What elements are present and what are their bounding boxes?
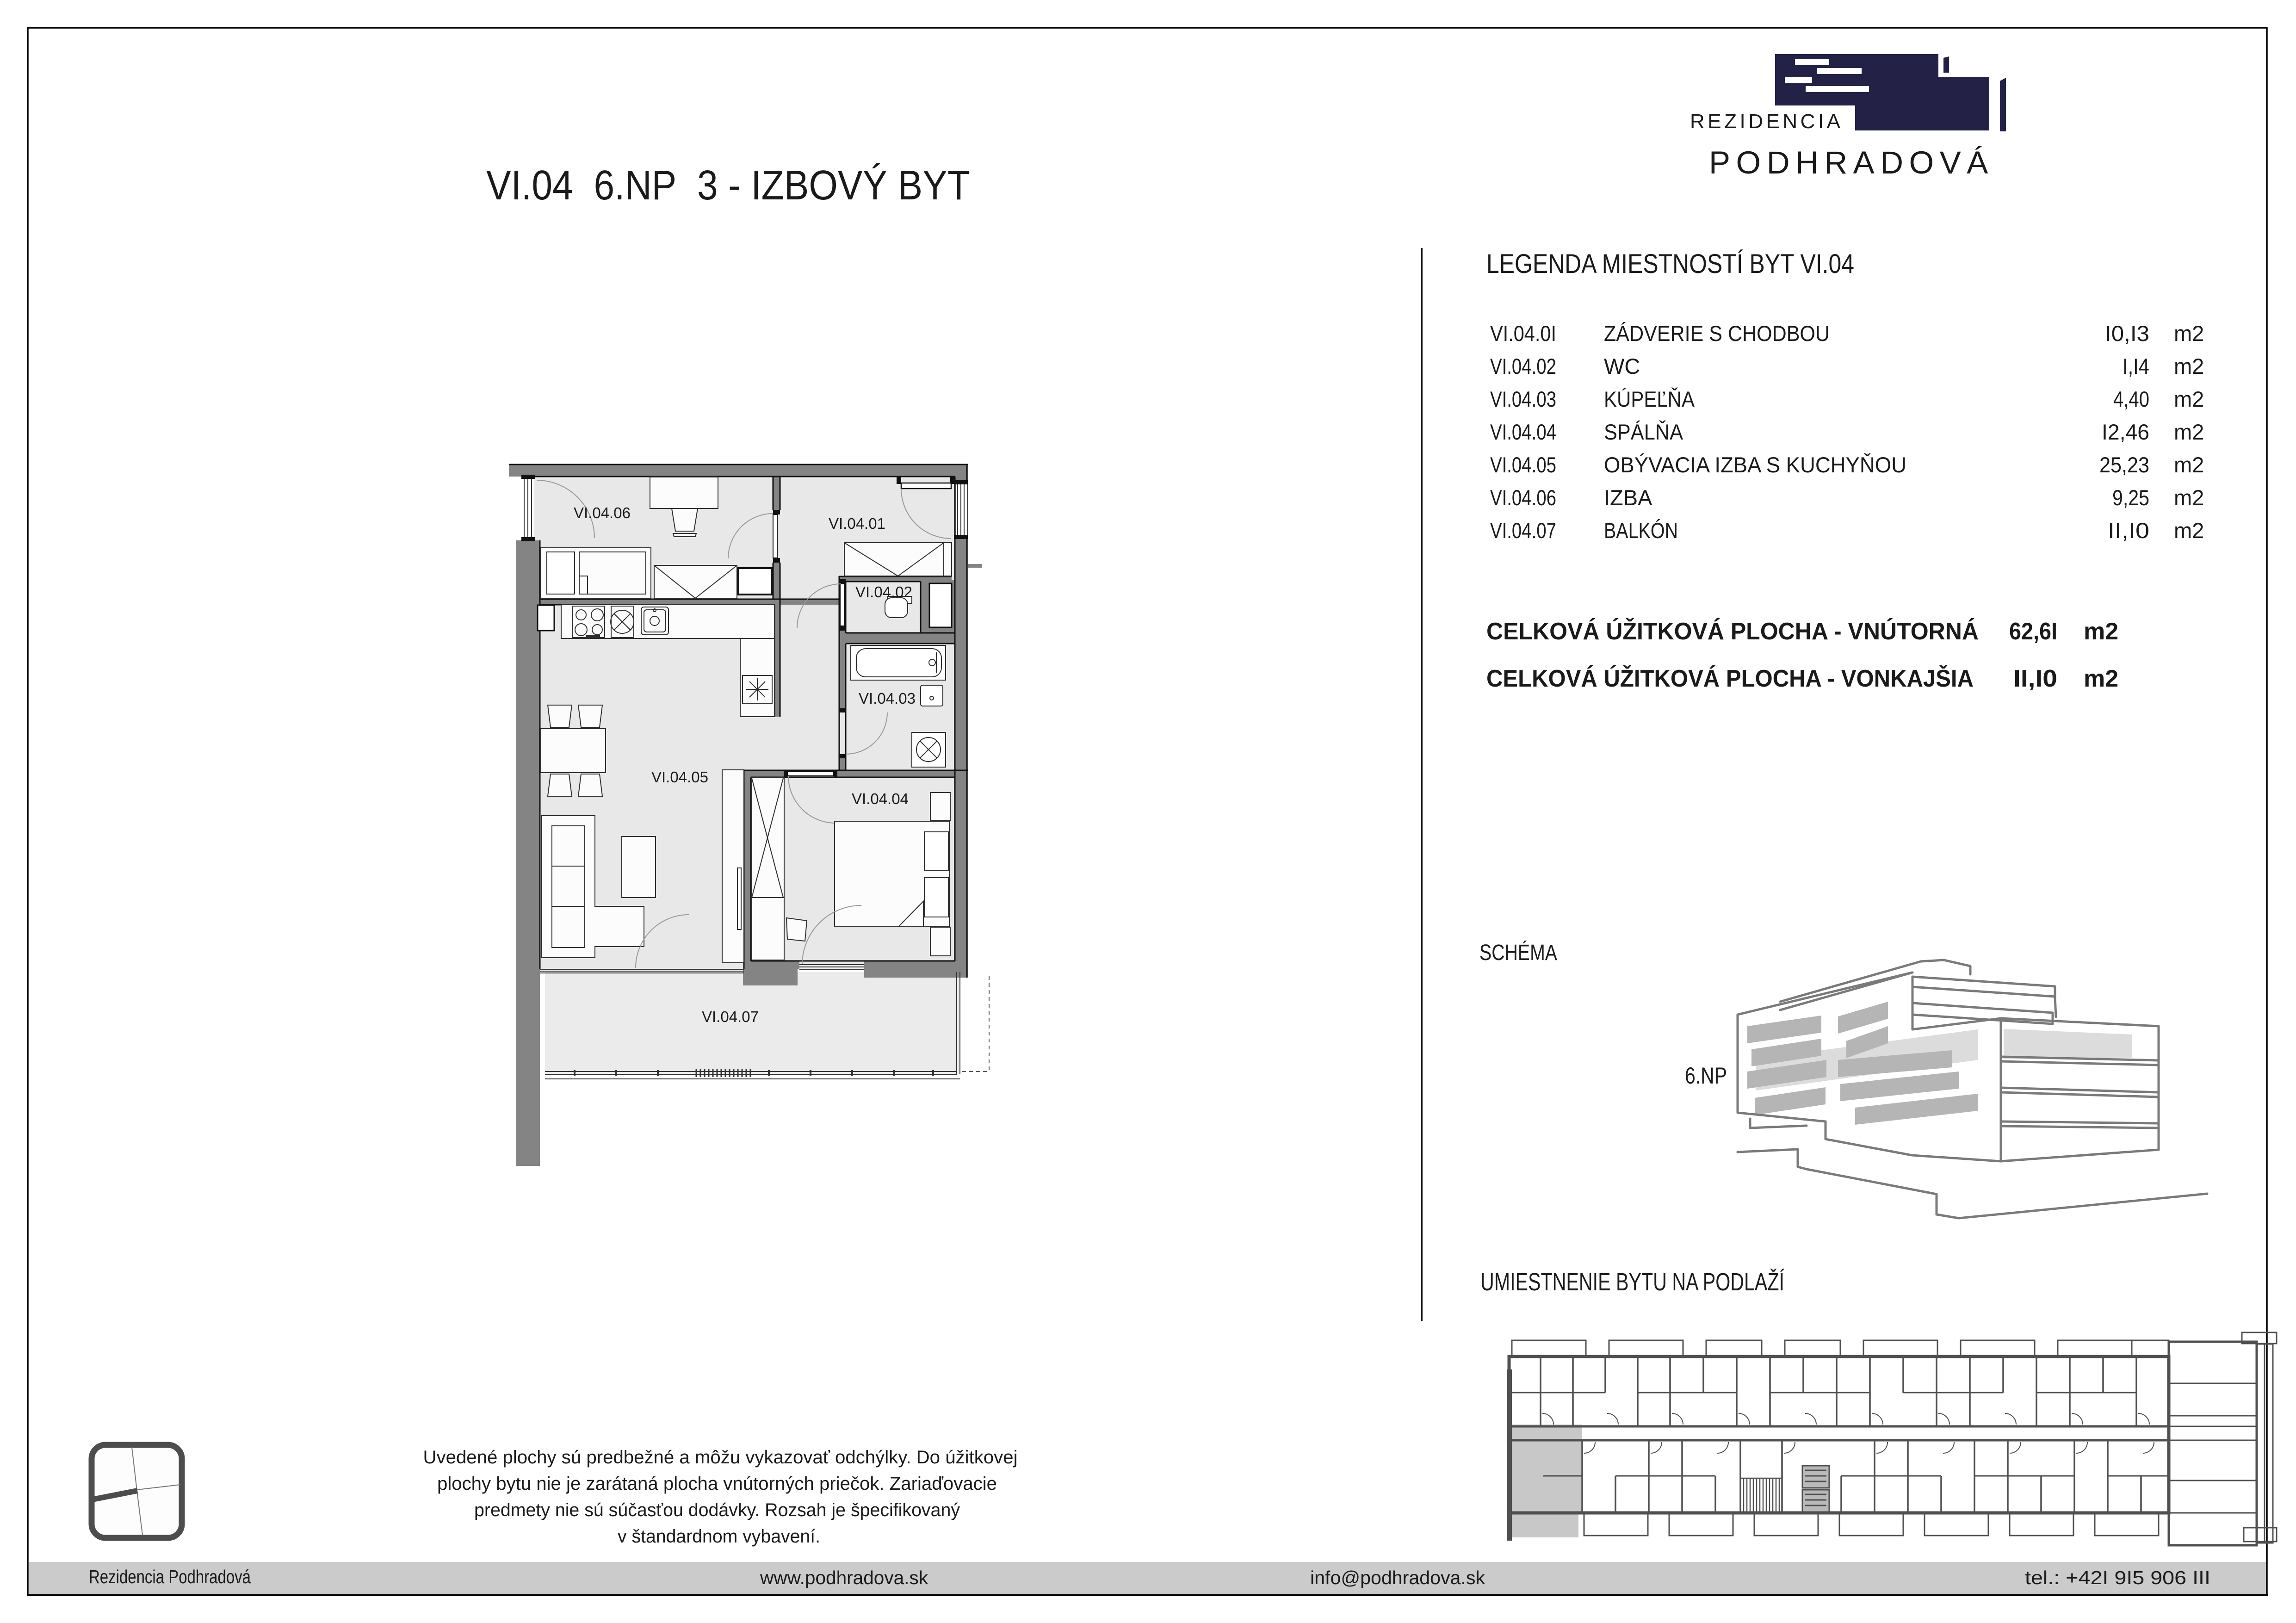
svg-text:CELKOVÁ ÚŽITKOVÁ PLOCHA - VNÚT: CELKOVÁ ÚŽITKOVÁ PLOCHA - VNÚTORNÁ [1486,618,1979,645]
svg-text:VI.04.04: VI.04.04 [1490,420,1556,444]
svg-text:m2: m2 [2174,420,2204,444]
svg-text:I,I4: I,I4 [2123,354,2149,378]
svg-text:VI.04.0I: VI.04.0I [1490,321,1556,346]
svg-text:LEGENDA MIESTNOSTÍ BYT VI.04: LEGENDA MIESTNOSTÍ BYT VI.04 [1486,249,1854,279]
svg-text:II,I0: II,I0 [2013,665,2057,692]
svg-text:m2: m2 [2084,618,2118,645]
svg-text:SPÁLŇA: SPÁLŇA [1604,420,1683,444]
svg-text:m2: m2 [2084,665,2118,692]
svg-text:m2: m2 [2174,387,2204,411]
svg-text:VI.04.03: VI.04.03 [859,690,916,707]
svg-text:m2: m2 [2174,354,2204,378]
svg-text:ZÁDVERIE S CHODBOU: ZÁDVERIE S CHODBOU [1604,321,1830,346]
svg-text:IZBA: IZBA [1604,485,1652,510]
svg-text:BALKÓN: BALKÓN [1604,518,1678,543]
svg-text:predmety nie sú súčasťou dodáv: predmety nie sú súčasťou dodávky. Rozsah… [474,1500,960,1520]
svg-text:VI.04.04: VI.04.04 [852,790,909,807]
svg-text:CELKOVÁ ÚŽITKOVÁ PLOCHA - VONK: CELKOVÁ ÚŽITKOVÁ PLOCHA - VONKAJŠIA [1486,665,1974,692]
svg-text:Uvedené plochy sú predbežné a: Uvedené plochy sú predbežné a môžu vykaz… [423,1447,1018,1468]
svg-text:m2: m2 [2174,452,2204,477]
svg-text:v štandardnom vybavení.: v štandardnom vybavení. [618,1526,820,1547]
svg-text:VI.04.06: VI.04.06 [574,504,631,521]
svg-text:II,I0: II,I0 [2108,518,2149,543]
svg-text:SCHÉMA: SCHÉMA [1479,941,1557,965]
svg-text:REZIDENCIA: REZIDENCIA [1690,110,1843,133]
svg-text:VI.04.07: VI.04.07 [1490,518,1556,543]
svg-text:KÚPEĽŇA: KÚPEĽŇA [1604,387,1695,411]
svg-text:m2: m2 [2174,321,2204,346]
svg-text:VI.04.02: VI.04.02 [1490,354,1556,378]
svg-text:WC: WC [1604,354,1640,378]
svg-text:VI.04.03: VI.04.03 [1490,387,1556,411]
svg-text:Rezidencia Podhradová: Rezidencia Podhradová [89,1566,251,1587]
svg-text:4,40: 4,40 [2113,387,2149,411]
svg-text:VI.04 6.NP 3 - IZBOVÝ BYT: VI.04 6.NP 3 - IZBOVÝ BYT [486,162,970,209]
svg-text:plochy bytu nie je zarátaná pl: plochy bytu nie je zarátaná plocha vnúto… [437,1474,997,1494]
svg-text:I0,I3: I0,I3 [2105,321,2149,346]
svg-text:6.NP: 6.NP [1685,1063,1727,1089]
svg-text:VI.04.01: VI.04.01 [829,515,885,532]
svg-text:m2: m2 [2174,518,2204,543]
svg-text:VI.04.02: VI.04.02 [855,583,912,601]
svg-text:info@podhradova.sk: info@podhradova.sk [1310,1567,1485,1588]
svg-text:tel.: +42I 9I5 906 III: tel.: +42I 9I5 906 III [2025,1567,2210,1588]
svg-text:25,23: 25,23 [2099,452,2149,477]
svg-text:VI.04.07: VI.04.07 [702,1008,759,1025]
svg-text:UMIESTNENIE BYTU NA PODLAŽÍ: UMIESTNENIE BYTU NA PODLAŽÍ [1480,1268,1784,1296]
svg-text:62,6I: 62,6I [2009,618,2057,645]
svg-text:OBÝVACIA IZBA S KUCHYŇOU: OBÝVACIA IZBA S KUCHYŇOU [1604,452,1906,477]
svg-text:I2,46: I2,46 [2102,420,2149,444]
svg-text:VI.04.06: VI.04.06 [1490,485,1556,510]
svg-text:VI.04.05: VI.04.05 [651,768,708,786]
svg-text:PODHRADOVÁ: PODHRADOVÁ [1709,145,1994,180]
svg-text:VI.04.05: VI.04.05 [1490,452,1556,477]
svg-text:9,25: 9,25 [2112,485,2149,510]
svg-text:www.podhradova.sk: www.podhradova.sk [760,1567,928,1588]
svg-text:m2: m2 [2174,485,2204,510]
